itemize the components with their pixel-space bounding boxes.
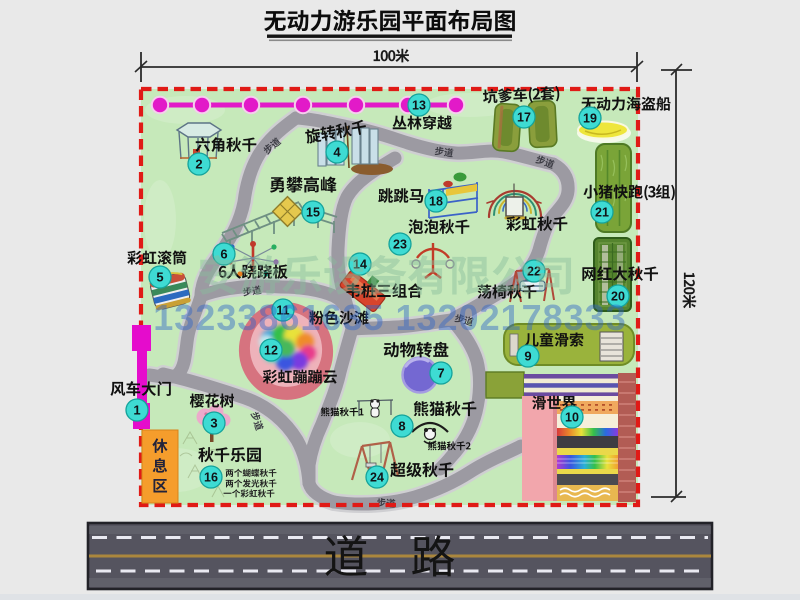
svg-text:3: 3 (210, 416, 217, 431)
svg-text:24: 24 (370, 471, 384, 485)
svg-text:18: 18 (429, 195, 443, 209)
svg-text:17: 17 (517, 111, 531, 125)
svg-text:13: 13 (412, 99, 426, 113)
svg-text:21: 21 (595, 206, 609, 220)
svg-text:10: 10 (565, 411, 579, 425)
svg-text:6: 6 (220, 247, 227, 262)
svg-text:15: 15 (306, 206, 320, 220)
svg-text:1: 1 (133, 403, 140, 418)
svg-text:23: 23 (393, 238, 407, 252)
svg-text:7: 7 (437, 366, 444, 381)
svg-text:4: 4 (333, 145, 341, 160)
svg-text:16: 16 (204, 471, 218, 485)
svg-text:9: 9 (524, 349, 531, 364)
svg-text:8: 8 (398, 419, 405, 434)
svg-text:13233861635 13202178333: 13233861635 13202178333 (153, 297, 626, 338)
svg-text:5: 5 (156, 270, 163, 285)
svg-text:2: 2 (195, 157, 202, 172)
svg-text:19: 19 (583, 112, 597, 126)
svg-text:12: 12 (264, 344, 278, 358)
